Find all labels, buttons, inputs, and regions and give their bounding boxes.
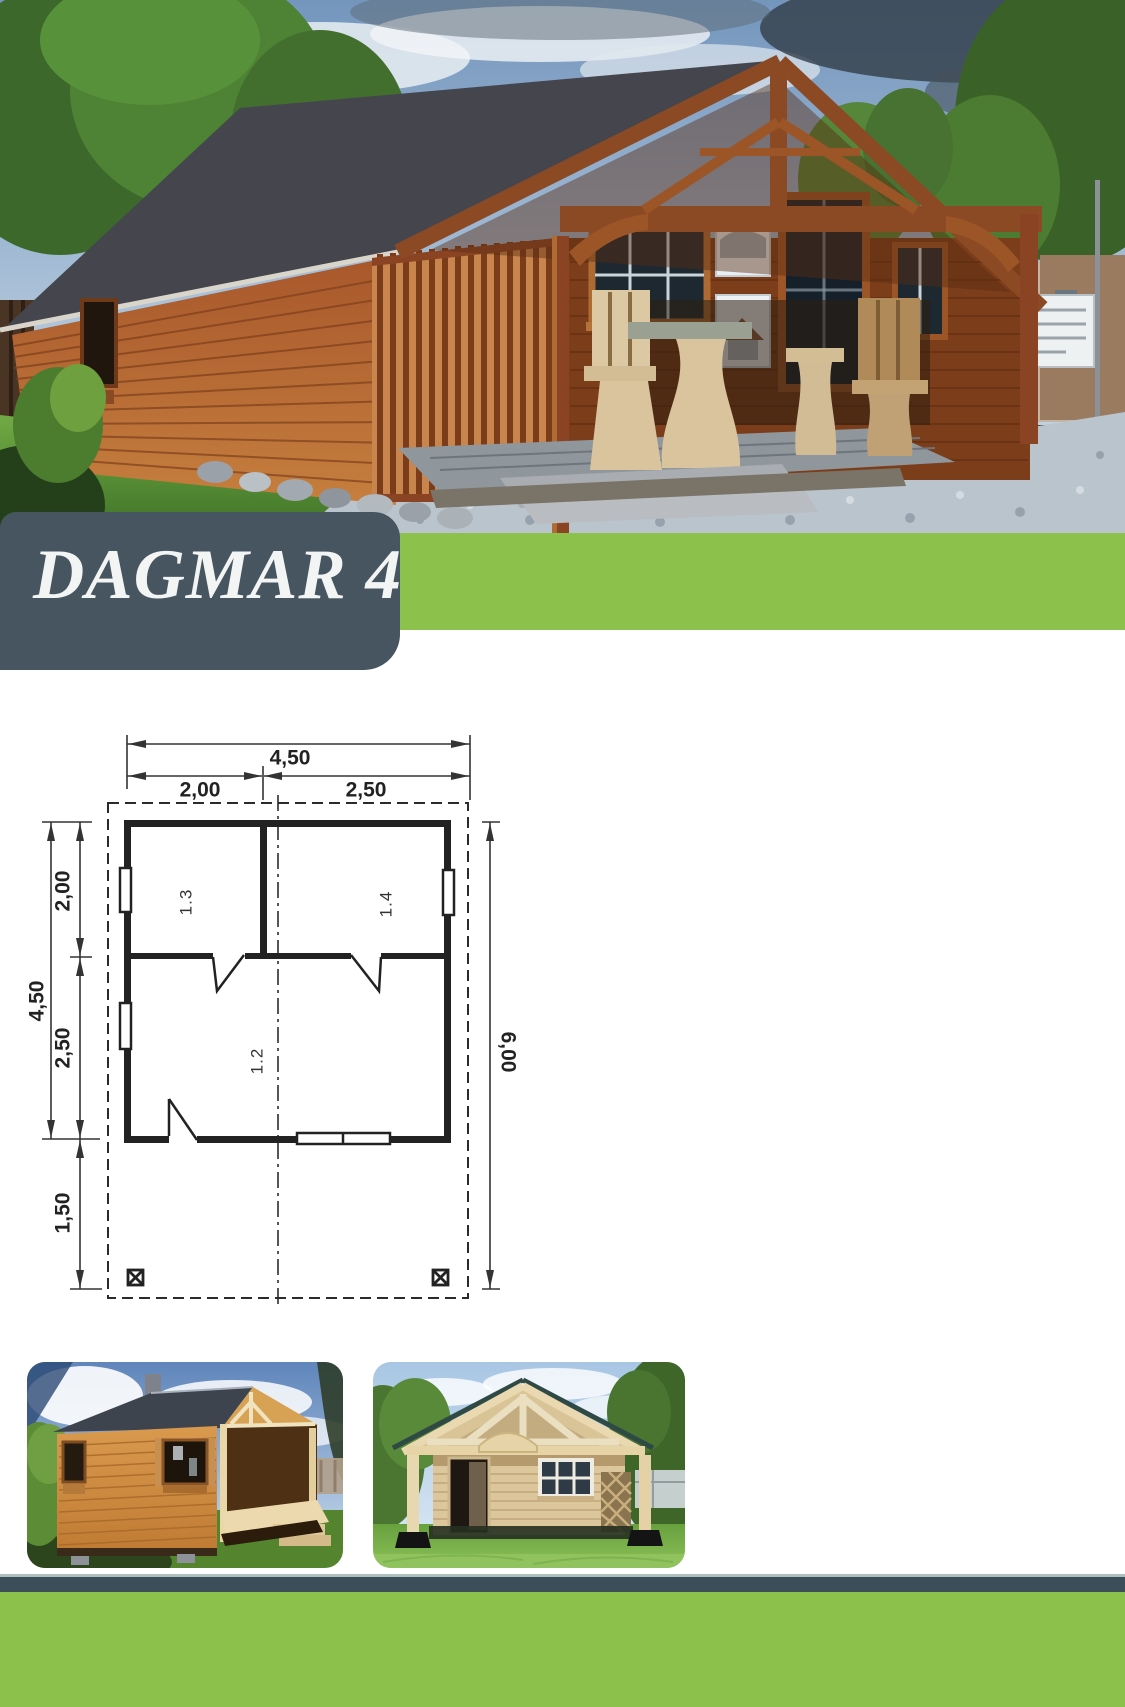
post-left <box>407 1455 419 1537</box>
terrace-posts <box>128 1270 448 1285</box>
dim-top-left: 2,00 <box>180 780 221 801</box>
dim-top-right: 2,50 <box>346 780 387 801</box>
dim-top-total: 4,50 <box>270 748 311 769</box>
post-right <box>639 1455 651 1535</box>
door <box>449 1458 489 1534</box>
dim-right-total: 6,00 <box>498 1032 519 1073</box>
plot-outline <box>108 803 468 1298</box>
window-large <box>155 1438 215 1493</box>
main-cabin-photo <box>0 0 1125 535</box>
walls <box>124 820 451 1143</box>
title-banner: DAGMAR 4 <box>0 512 400 670</box>
page-title: DAGMAR 4 <box>33 536 402 614</box>
flag-pole <box>1095 180 1100 420</box>
dim-left-top: 2,00 <box>53 871 74 912</box>
post-base-right <box>627 1530 663 1546</box>
door-swings <box>169 955 381 1140</box>
dim-left-bottom: 1,50 <box>53 1193 74 1234</box>
room-label-1-4: 1.4 <box>378 891 395 918</box>
post-base-left <box>395 1532 431 1548</box>
dim-left-middle: 2,50 <box>53 1028 74 1069</box>
dim-left-total: 4,50 <box>27 981 48 1022</box>
dimension-lines <box>42 735 500 1289</box>
footer-green-bar <box>0 1592 1125 1707</box>
thumbnail-photo-front-view <box>373 1362 685 1568</box>
thumbnail-photo-side-view <box>27 1362 343 1568</box>
side-lattice <box>601 1472 631 1532</box>
room-label-1-3: 1.3 <box>178 889 195 916</box>
room-label-1-2: 1.2 <box>249 1048 266 1075</box>
main-cabin-illustration <box>0 0 1125 535</box>
front-view-illustration <box>373 1362 685 1568</box>
brochure-page: DAGMAR 4 <box>0 0 1125 1707</box>
front-window <box>537 1460 594 1501</box>
shadow-under-porch <box>429 1526 633 1539</box>
window-small <box>63 1442 85 1482</box>
footer-dark-bar <box>0 1577 1125 1592</box>
side-view-illustration <box>27 1362 343 1568</box>
